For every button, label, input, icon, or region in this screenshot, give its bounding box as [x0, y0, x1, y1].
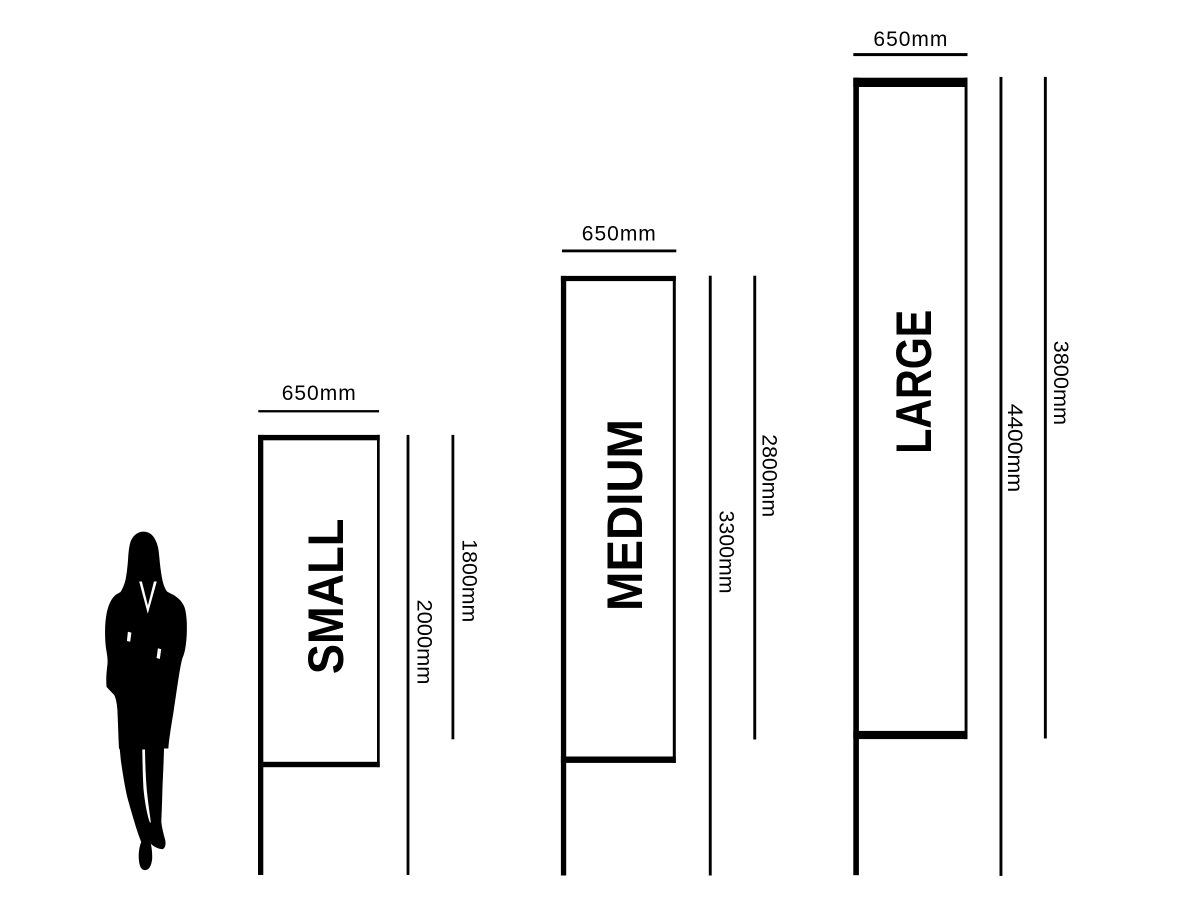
svg-text:2000mm: 2000mm [413, 600, 436, 685]
svg-text:650mm: 650mm [282, 382, 356, 405]
svg-text:1800mm: 1800mm [458, 539, 481, 622]
svg-text:650mm: 650mm [582, 222, 656, 245]
svg-text:MEDIUM: MEDIUM [597, 419, 653, 611]
svg-text:3800mm: 3800mm [1049, 341, 1072, 426]
svg-text:3300mm: 3300mm [715, 511, 738, 594]
svg-text:2800mm: 2800mm [758, 434, 781, 517]
svg-text:SMALL: SMALL [298, 519, 354, 675]
svg-text:LARGE: LARGE [886, 310, 942, 454]
svg-text:650mm: 650mm [873, 28, 947, 51]
svg-text:4400mm: 4400mm [1003, 404, 1026, 493]
